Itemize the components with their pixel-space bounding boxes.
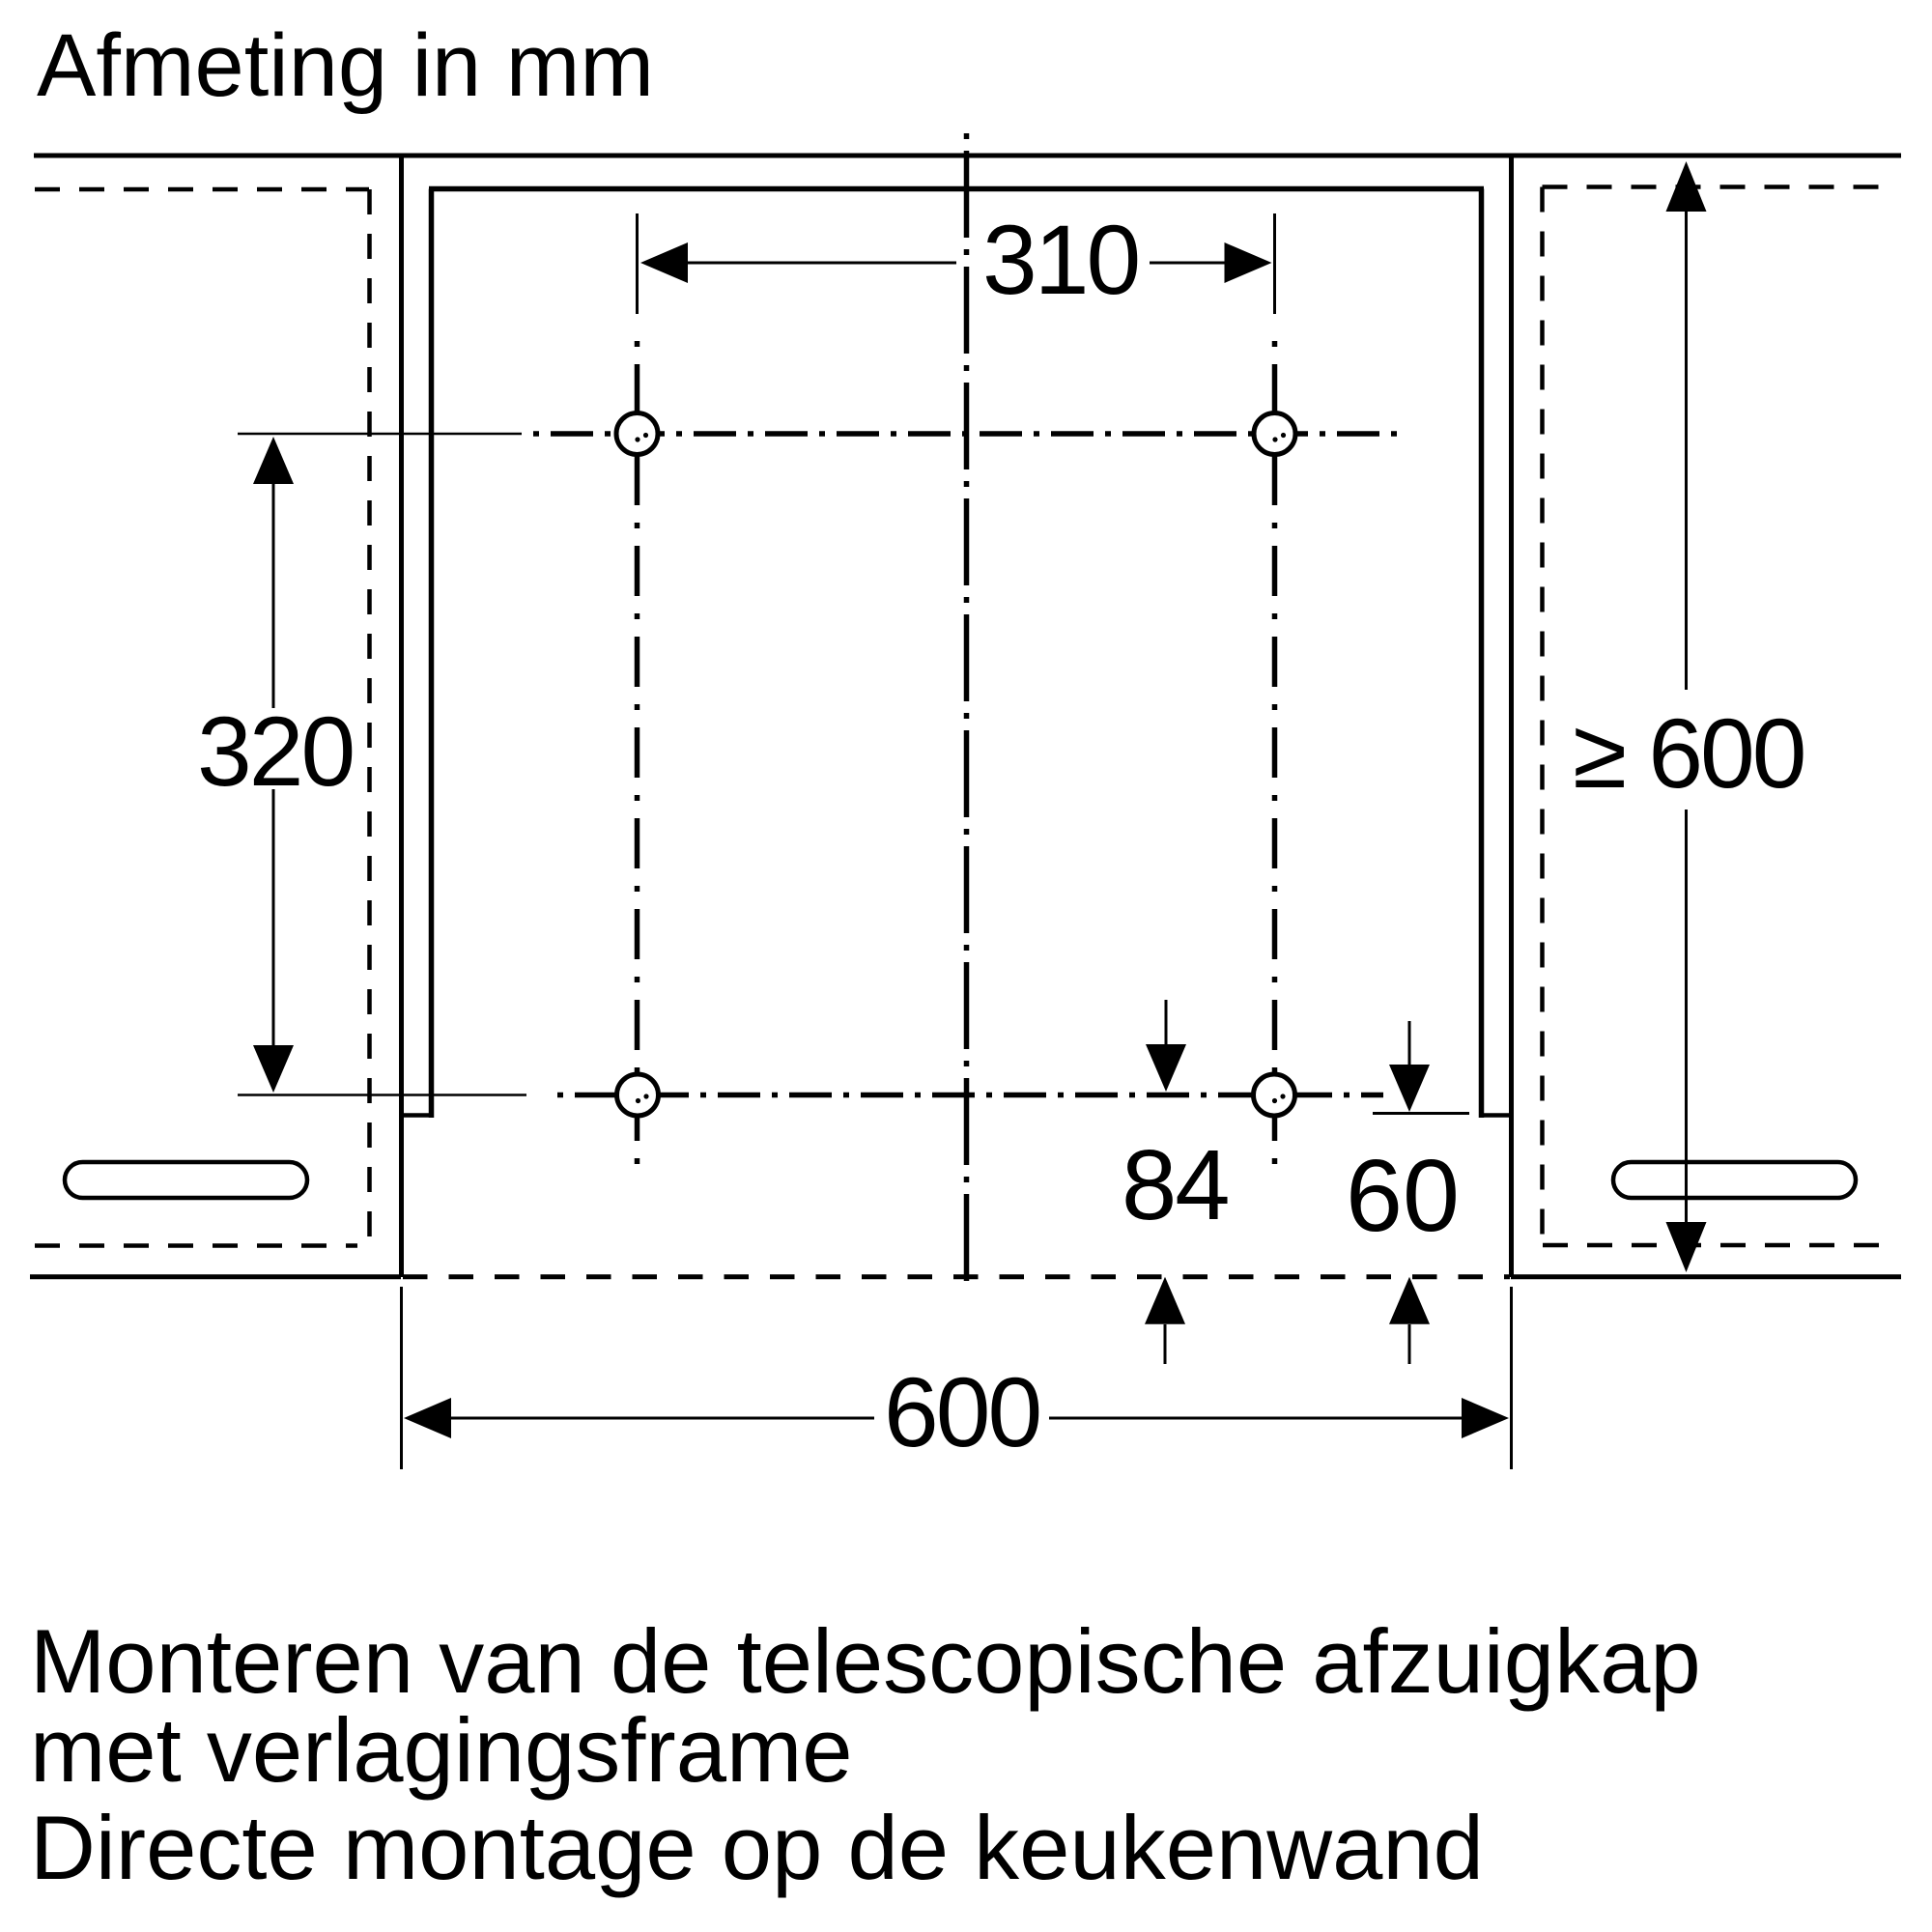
svg-text:Monteren van de telescopische: Monteren van de telescopische afzuigkap (30, 1610, 1701, 1712)
svg-text:320: 320 (197, 696, 353, 807)
svg-text:84: 84 (1122, 1129, 1229, 1240)
svg-text:Directe montage op de keukenwa: Directe montage op de keukenwand (30, 1797, 1484, 1898)
svg-text:Afmeting in mm: Afmeting in mm (37, 16, 654, 115)
svg-text:≥ 600: ≥ 600 (1573, 698, 1804, 809)
svg-text:600: 600 (884, 1357, 1039, 1467)
svg-text:310: 310 (982, 205, 1138, 315)
svg-text:60: 60 (1346, 1139, 1460, 1253)
svg-text:met verlagingsframe: met verlagingsframe (30, 1699, 853, 1801)
